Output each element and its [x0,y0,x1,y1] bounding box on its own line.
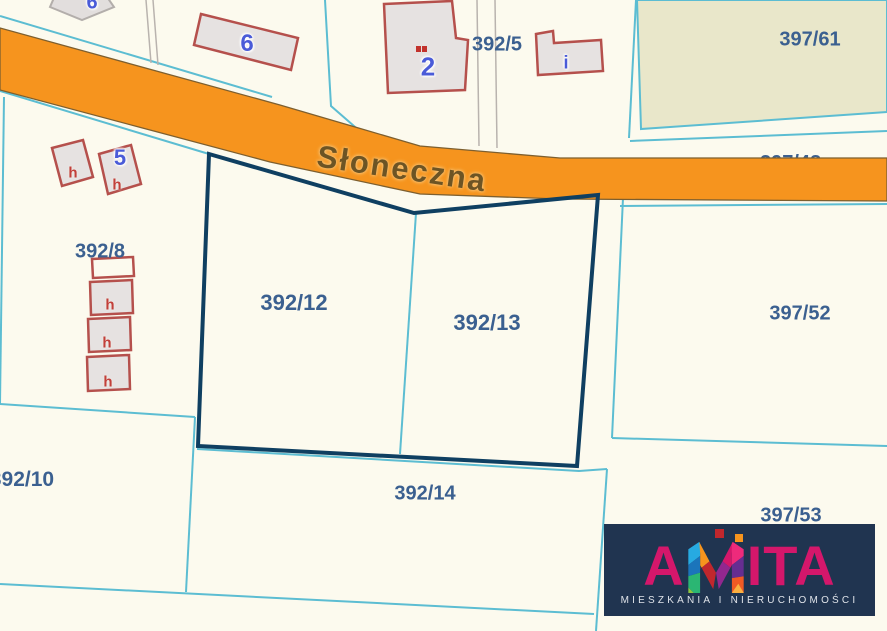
building-mark-h: h [68,165,77,182]
building-symbol-red [416,46,427,52]
boundary-line [612,198,623,438]
house-letter-i: i [563,53,568,74]
amita-logo: A [604,524,875,616]
house-number-6-topleft: 6 [86,0,97,15]
logo-tagline: MIESZKANIA I NIERUCHOMOŚCI [621,595,859,606]
boundary-line [630,131,887,141]
cadastral-map[interactable]: 397/48 6 Słoneczna 392/5 397/61 392/8 39… [0,0,887,631]
building-mark-h: h [102,335,111,352]
building-mark-h: h [105,297,114,314]
house-number-6: 6 [240,30,253,58]
parcel-label-397-52: 397/52 [769,303,830,326]
logo-brand-row: A [643,533,836,591]
parcel-label-392-12: 392/12 [260,290,327,316]
selected-parcels-outline[interactable] [198,154,598,466]
building-mark-h: h [112,177,121,194]
parcel-label-392-5: 392/5 [472,34,522,57]
boundary-line [0,404,195,417]
boundary-line [325,0,362,133]
parcel-label-392-13: 392/13 [453,310,520,336]
parcel-label-392-10: 392/10 [0,468,54,492]
boundary-line [629,0,636,138]
building-topleft[interactable] [50,0,114,20]
boundary-line [186,417,195,592]
logo-letter-a1: A [643,541,684,591]
parcel-label-392-8: 392/8 [75,241,125,264]
parcel-shape-397-61[interactable] [637,0,887,129]
boundary-line [197,449,607,471]
parcel-label-392-14: 392/14 [394,483,455,506]
boundary-line [0,584,594,614]
house-number-5: 5 [114,145,126,171]
boundary-line [620,204,887,206]
parcel-label-397-61: 397/61 [779,29,840,52]
logo-letter-m-mosaic [688,541,744,593]
parcel-divider-392-12-13 [400,213,416,454]
building-mark-h: h [103,374,112,391]
boundary-line [612,438,887,446]
boundary-line [0,97,4,404]
building-i[interactable] [536,31,603,75]
logo-letters-ita: ITA [747,541,836,591]
logo-red-square [715,529,724,538]
house-number-2: 2 [421,52,435,83]
